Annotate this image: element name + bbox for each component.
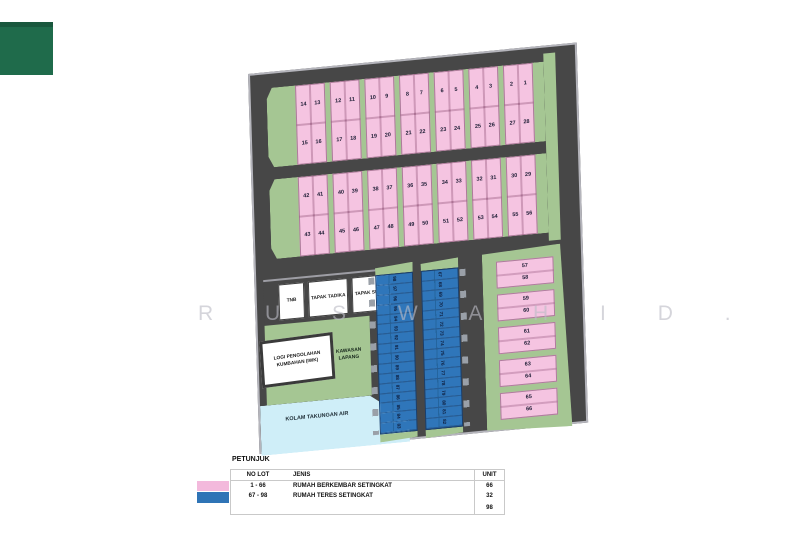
lot-10: 10 bbox=[365, 78, 380, 118]
lot-30: 30 bbox=[507, 157, 522, 197]
lot-number: 23 bbox=[440, 128, 446, 134]
lot-number: 76 bbox=[440, 360, 445, 366]
lot-number: 45 bbox=[339, 229, 345, 235]
lot-pair-61-62: 6162 bbox=[498, 322, 556, 354]
legend-col-no-lot: NO LOT bbox=[231, 472, 285, 478]
lot-number: 56 bbox=[526, 211, 532, 217]
lot-47: 47 bbox=[369, 209, 384, 249]
lot-number: 36 bbox=[407, 184, 413, 190]
lot-quad: 1091920 bbox=[364, 76, 396, 158]
lot-12: 12 bbox=[331, 82, 346, 122]
lot-9: 9 bbox=[379, 77, 394, 117]
lot-number: 47 bbox=[374, 226, 380, 232]
lot-number: 30 bbox=[511, 174, 517, 180]
iwk-box: LOGI PENGOLAHAN KUMBAHAN (IWK) bbox=[259, 332, 335, 388]
lot-37: 37 bbox=[382, 169, 397, 209]
lot-number: 98 bbox=[392, 276, 397, 282]
lot-29: 29 bbox=[521, 155, 536, 195]
terrace-column-left: 98979695949392919089888786858483 bbox=[375, 262, 418, 443]
lot-18: 18 bbox=[346, 119, 361, 159]
lot-number: 50 bbox=[422, 221, 428, 227]
lot-19: 19 bbox=[367, 117, 382, 157]
lot-7: 7 bbox=[414, 74, 429, 114]
tapak-tadika-box: TAPAK TADIKA bbox=[308, 278, 349, 318]
lot-46: 46 bbox=[348, 211, 363, 251]
lot-number: 40 bbox=[338, 190, 344, 196]
lot-quad: 12111718 bbox=[330, 79, 362, 161]
lot-6: 6 bbox=[435, 72, 450, 112]
lot-number: 85 bbox=[396, 404, 401, 410]
lot-number: 68 bbox=[438, 282, 443, 288]
legend-col-unit: UNIT bbox=[474, 470, 504, 480]
lot-50: 50 bbox=[418, 204, 433, 244]
block-a: 1413151612111718109192087212265232443252… bbox=[266, 62, 546, 168]
legend-swatch bbox=[197, 481, 229, 491]
lot-number: 34 bbox=[442, 180, 448, 186]
lot-number: 84 bbox=[396, 414, 401, 420]
lot-number: 81 bbox=[442, 409, 447, 415]
green-wedge bbox=[269, 177, 295, 259]
lot-54: 54 bbox=[487, 197, 502, 237]
lot-number: 75 bbox=[440, 350, 445, 356]
legend-title: PETUNJUK bbox=[232, 456, 270, 463]
lot-28: 28 bbox=[519, 103, 534, 143]
lot-number: 16 bbox=[315, 140, 321, 146]
lot-number: 38 bbox=[372, 187, 378, 193]
lot-number: 97 bbox=[392, 286, 397, 292]
lot-quad: 432526 bbox=[468, 66, 500, 148]
lot-number: 42 bbox=[303, 194, 309, 200]
lot-82: 82 bbox=[426, 416, 462, 429]
lot-number: 93 bbox=[393, 325, 398, 331]
lot-number: 63 bbox=[525, 362, 531, 368]
lot-number: 18 bbox=[350, 136, 356, 142]
lot-number: 79 bbox=[441, 390, 446, 396]
lot-13: 13 bbox=[310, 84, 325, 124]
lot-number: 96 bbox=[392, 296, 397, 302]
lot-quad: 14131516 bbox=[295, 83, 327, 165]
lot-43: 43 bbox=[300, 215, 315, 255]
lot-20: 20 bbox=[380, 116, 395, 156]
corner-square bbox=[0, 22, 53, 75]
lot-number: 71 bbox=[439, 311, 444, 317]
lot-number: 32 bbox=[476, 177, 482, 183]
legend-unit: 66 bbox=[474, 481, 504, 491]
lot-number: 31 bbox=[490, 176, 496, 182]
lot-quad: 42414344 bbox=[298, 174, 330, 256]
legend-col-jenis: JENIS bbox=[285, 472, 474, 478]
lot-31: 31 bbox=[486, 159, 501, 199]
lot-number: 70 bbox=[438, 301, 443, 307]
legend-swatch bbox=[197, 492, 229, 503]
lot-number: 2 bbox=[510, 82, 513, 88]
lot-number: 92 bbox=[394, 335, 399, 341]
legend-jenis: RUMAH TERES SETINGKAT bbox=[285, 493, 474, 499]
kolam-label: KOLAM TAKUNGAN AIR bbox=[284, 411, 350, 425]
legend-no-lot: 1 - 66 bbox=[231, 483, 285, 489]
lot-number: 27 bbox=[510, 121, 516, 127]
legend-total-row: 98 bbox=[231, 501, 504, 514]
lot-49: 49 bbox=[404, 205, 419, 245]
lot-number: 55 bbox=[512, 212, 518, 218]
lot-33: 33 bbox=[451, 162, 466, 202]
legend-unit: 32 bbox=[474, 491, 504, 501]
lot-number: 54 bbox=[491, 214, 497, 220]
lot-number: 6 bbox=[441, 89, 444, 95]
lot-56: 56 bbox=[522, 194, 537, 234]
lot-number: 35 bbox=[421, 182, 427, 188]
lot-number: 60 bbox=[523, 308, 529, 314]
lot-quad: 40394546 bbox=[332, 171, 364, 253]
lot-number: 44 bbox=[318, 231, 324, 237]
lot-number: 89 bbox=[394, 365, 399, 371]
lot-number: 43 bbox=[304, 232, 310, 238]
legend-header-row: NO LOT JENIS UNIT bbox=[231, 470, 504, 481]
lot-number: 17 bbox=[336, 138, 342, 144]
lot-48: 48 bbox=[383, 207, 398, 247]
lot-pair-63-64: 6364 bbox=[499, 355, 557, 387]
lot-32: 32 bbox=[472, 160, 487, 200]
lot-15: 15 bbox=[297, 124, 312, 164]
lot-number: 41 bbox=[317, 192, 323, 198]
lot-51: 51 bbox=[439, 202, 454, 242]
lot-number: 72 bbox=[439, 321, 444, 327]
lot-number: 25 bbox=[475, 124, 481, 130]
lot-5: 5 bbox=[448, 70, 463, 110]
lot-number: 62 bbox=[524, 341, 530, 347]
lot-number: 48 bbox=[388, 224, 394, 230]
lot-21: 21 bbox=[401, 114, 416, 154]
lot-quad: 872122 bbox=[399, 73, 431, 155]
lot-number: 49 bbox=[408, 222, 414, 228]
lot-number: 39 bbox=[352, 189, 358, 195]
block-b: 4241434440394546383747483635495034335152… bbox=[269, 153, 549, 259]
lot-number: 15 bbox=[302, 141, 308, 147]
lot-quad: 30295556 bbox=[506, 154, 538, 236]
lot-40: 40 bbox=[333, 173, 348, 213]
lot-22: 22 bbox=[415, 113, 430, 153]
lot-23: 23 bbox=[436, 111, 451, 151]
lot-number: 86 bbox=[395, 394, 400, 400]
lot-number: 10 bbox=[370, 95, 376, 101]
terrace-lots-right: 67686970717273747576777879808182 bbox=[421, 267, 463, 430]
lot-number: 82 bbox=[442, 419, 447, 425]
green-wedge bbox=[266, 86, 292, 168]
lot-number: 52 bbox=[457, 218, 463, 224]
lot-number: 94 bbox=[393, 315, 398, 321]
lot-number: 91 bbox=[394, 345, 399, 351]
lot-number: 11 bbox=[349, 97, 355, 103]
lot-number: 51 bbox=[443, 219, 449, 225]
lot-52: 52 bbox=[452, 201, 467, 241]
legend-table: NO LOT JENIS UNIT 1 - 66 RUMAH BERKEMBAR… bbox=[230, 469, 505, 515]
lot-number: 69 bbox=[438, 291, 443, 297]
lot-number: 28 bbox=[523, 120, 529, 126]
lot-1: 1 bbox=[518, 64, 533, 104]
lot-quad: 652324 bbox=[434, 69, 466, 151]
lot-45: 45 bbox=[335, 212, 350, 252]
terrace-lots-left: 98979695949392919089888786858483 bbox=[375, 272, 417, 435]
lot-number: 8 bbox=[406, 92, 409, 98]
lot-4: 4 bbox=[469, 68, 484, 108]
lot-number: 7 bbox=[420, 91, 423, 97]
lot-27: 27 bbox=[505, 104, 520, 144]
lot-number: 67 bbox=[437, 272, 442, 278]
lot-number: 53 bbox=[478, 216, 484, 222]
lot-number: 12 bbox=[335, 99, 341, 105]
legend-row-teres: 67 - 98 RUMAH TERES SETINGKAT 32 bbox=[231, 491, 504, 501]
lot-number: 74 bbox=[439, 341, 444, 347]
lot-number: 65 bbox=[526, 395, 532, 401]
lot-24: 24 bbox=[450, 109, 465, 149]
terrace-column-right: 67686970717273747576777879808182 bbox=[420, 257, 463, 438]
lot-number: 33 bbox=[456, 179, 462, 185]
lot-number: 88 bbox=[395, 374, 400, 380]
lot-pair-59-60: 5960 bbox=[497, 289, 555, 321]
lot-number: 61 bbox=[524, 329, 530, 335]
east-lot-boxes: 57585960616263646566 bbox=[496, 256, 558, 426]
lot-quad: 32315354 bbox=[471, 158, 503, 240]
lot-number: 95 bbox=[393, 306, 398, 312]
lot-pair-65-66: 6566 bbox=[500, 388, 558, 420]
lot-quad: 36354950 bbox=[402, 164, 434, 246]
lot-number: 13 bbox=[314, 101, 320, 107]
lot-number: 4 bbox=[475, 86, 478, 92]
lot-number: 73 bbox=[439, 331, 444, 337]
lot-quad: 212728 bbox=[503, 63, 535, 145]
lot-35: 35 bbox=[417, 165, 432, 205]
lot-number: 83 bbox=[396, 424, 401, 430]
lot-53: 53 bbox=[473, 199, 488, 239]
legend-total-unit: 98 bbox=[474, 501, 504, 514]
lot-16: 16 bbox=[311, 123, 326, 163]
site-plan: 1413151612111718109192087212265232443252… bbox=[248, 42, 588, 454]
lot-number: 58 bbox=[522, 276, 528, 282]
lot-number: 46 bbox=[353, 228, 359, 234]
lot-number: 77 bbox=[440, 370, 445, 376]
lot-quad: 38374748 bbox=[367, 167, 399, 249]
east-column: 57585960616263646566 bbox=[482, 243, 573, 434]
lot-number: 19 bbox=[371, 134, 377, 140]
lot-quad: 34335152 bbox=[436, 161, 468, 243]
lot-34: 34 bbox=[437, 163, 452, 203]
lot-number: 14 bbox=[300, 102, 306, 108]
lot-number: 57 bbox=[522, 263, 528, 269]
legend-no-lot: 67 - 98 bbox=[231, 493, 285, 499]
tnb-box: TNB bbox=[278, 282, 305, 320]
lot-number: 37 bbox=[386, 186, 392, 192]
lot-55: 55 bbox=[508, 195, 523, 235]
lot-number: 87 bbox=[395, 384, 400, 390]
lot-number: 29 bbox=[525, 172, 531, 178]
lot-number: 90 bbox=[394, 355, 399, 361]
lot-pair-57-58: 5758 bbox=[496, 256, 554, 288]
lot-number: 20 bbox=[385, 133, 391, 139]
lot-11: 11 bbox=[345, 80, 360, 120]
lot-41: 41 bbox=[313, 175, 328, 215]
lot-number: 5 bbox=[454, 88, 457, 94]
lot-number: 9 bbox=[385, 94, 388, 100]
lot-42: 42 bbox=[299, 177, 314, 217]
lot-2: 2 bbox=[504, 65, 519, 105]
lot-number: 59 bbox=[523, 296, 529, 302]
lot-83: 83 bbox=[381, 420, 417, 433]
lot-number: 64 bbox=[525, 374, 531, 380]
lot-25: 25 bbox=[470, 107, 485, 147]
lot-number: 24 bbox=[454, 126, 460, 132]
legend-jenis: RUMAH BERKEMBAR SETINGKAT bbox=[285, 483, 474, 489]
legend-row-berkembar: 1 - 66 RUMAH BERKEMBAR SETINGKAT 66 bbox=[231, 481, 504, 491]
lot-3: 3 bbox=[483, 67, 498, 107]
lot-38: 38 bbox=[368, 170, 383, 210]
lot-number: 80 bbox=[441, 400, 446, 406]
lot-36: 36 bbox=[403, 167, 418, 207]
lot-44: 44 bbox=[314, 214, 329, 254]
lot-number: 1 bbox=[524, 81, 527, 87]
lot-number: 3 bbox=[489, 84, 492, 90]
lot-number: 21 bbox=[406, 131, 412, 137]
lot-number: 66 bbox=[526, 407, 532, 413]
lot-17: 17 bbox=[332, 121, 347, 161]
lot-14: 14 bbox=[296, 85, 311, 125]
lot-number: 78 bbox=[441, 380, 446, 386]
lot-number: 26 bbox=[489, 123, 495, 129]
lot-number: 22 bbox=[419, 130, 425, 136]
lot-26: 26 bbox=[484, 106, 499, 146]
lot-8: 8 bbox=[400, 75, 415, 115]
lot-39: 39 bbox=[347, 172, 362, 212]
